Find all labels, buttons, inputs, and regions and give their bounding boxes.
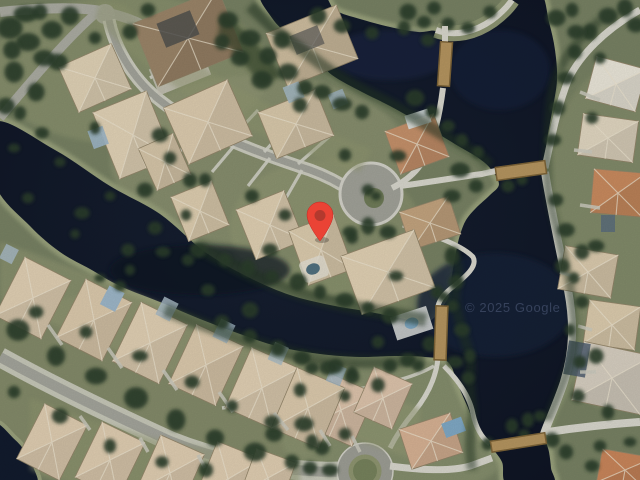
svg-text:© 2025 Google: © 2025 Google (465, 300, 560, 315)
